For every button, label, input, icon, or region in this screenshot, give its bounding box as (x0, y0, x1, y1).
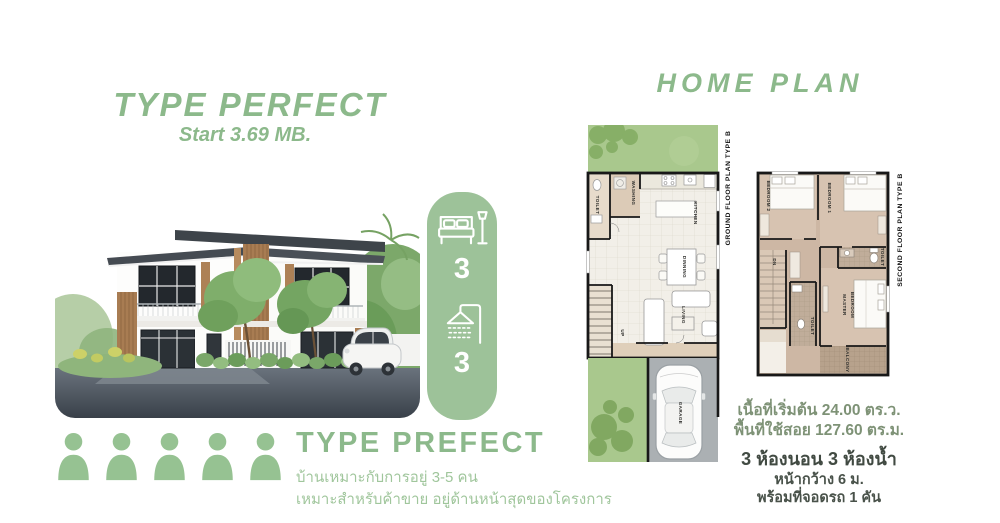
room-label-dinning: DINNING (682, 256, 687, 278)
room-label-kitchen: KITCHEN (693, 201, 698, 224)
room-label-garage: GARAGE (678, 402, 683, 425)
room-label-master-2: BEDROOM (850, 292, 855, 318)
bedroom-count: 3 (454, 254, 470, 284)
person-icon (151, 431, 188, 483)
spec-land-area: เนื้อที่เริ่มต้น 24.00 ตร.ว. (719, 401, 919, 421)
room-label-washing: WASHING (631, 181, 636, 206)
kitchen-counter (640, 173, 718, 189)
person-icon (247, 431, 284, 483)
price-text: Start 3.69 MB. (100, 124, 390, 147)
shower-icon (436, 300, 488, 348)
person-icon (55, 431, 92, 483)
spec-parking: พร้อมที่จอดรถ 1 คัน (719, 489, 919, 507)
person-icon (103, 431, 140, 483)
room-label-toilet-bottom: TOILET (810, 317, 815, 335)
room-label-toilet-top: TOILET (880, 248, 885, 266)
type-description: บ้านเหมาะกับการอยู่ 3-5 คน เหมาะสำหรับค้… (296, 467, 716, 511)
ground-plan-title: GROUND FLOOR PLAN TYPE B (725, 131, 732, 246)
room-label-master-1: MASTER (842, 294, 847, 316)
type-desc-line2: เหมาะสำหรับค้าขาย อยู่ด้านหน้าสุดของโครง… (296, 489, 716, 511)
page-title: TYPE PERFECT (100, 86, 400, 124)
house-photo (55, 200, 420, 418)
person-icon (199, 431, 236, 483)
second-floor-plan: BEDROOM 2 BEDROOM 1 DN TOILET MASTER BED… (754, 166, 914, 382)
room-label-up: UP (620, 329, 625, 336)
type-desc-line1: บ้านเหมาะกับการอยู่ 3-5 คน (296, 467, 716, 489)
house-illustration (55, 200, 420, 418)
feature-badge: 3 3 (427, 192, 497, 420)
spec-usable-area: พื้นที่ใช้สอย 127.60 ตร.ม. (719, 421, 919, 441)
occupancy-icons (55, 431, 284, 483)
kitchen-island (656, 201, 696, 217)
bathroom-count: 3 (454, 348, 470, 378)
home-plan-heading: HOME PLAN (655, 68, 865, 99)
brochure-page: TYPE PERFECT Start 3.69 MB. HOME PLAN (0, 0, 1000, 523)
room-label-toilet: TOILET (595, 196, 600, 215)
room-label-dn: DN (772, 258, 777, 265)
bed-icon (435, 208, 489, 254)
spec-rooms-summary: 3 ห้องนอน 3 ห้องน้ำ (719, 448, 919, 471)
room-label-balcony: BALCONY (845, 347, 850, 372)
second-plan-title: SECOND FLOOR PLAN TYPE B (897, 173, 904, 287)
specs-block: เนื้อที่เริ่มต้น 24.00 ตร.ว. พื้นที่ใช้ส… (719, 401, 919, 507)
room-label-bedroom1: BEDROOM 1 (827, 183, 832, 214)
room-label-bedroom2: BEDROOM 2 (766, 181, 771, 212)
room-label-living: LIVING (681, 306, 686, 324)
spec-frontage: หน้ากว้าง 6 ม. (719, 471, 919, 489)
balcony-floor (820, 346, 886, 373)
